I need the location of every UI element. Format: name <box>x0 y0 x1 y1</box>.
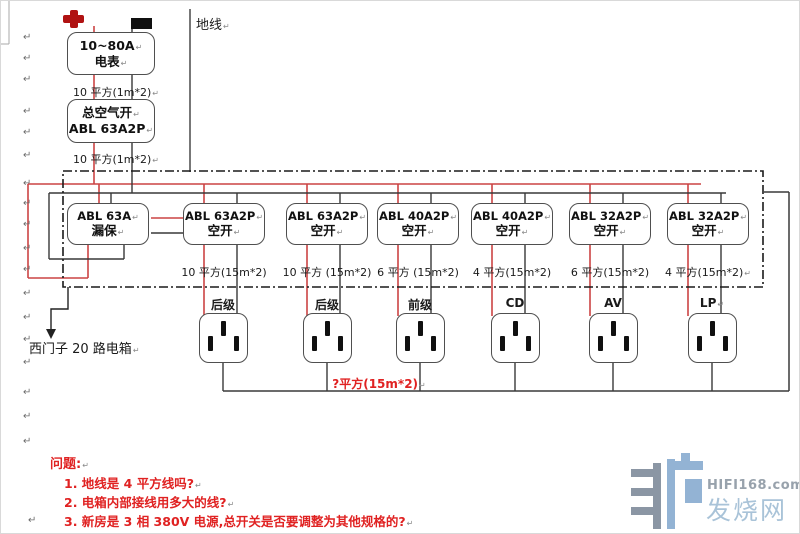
breaker-1: ABL 63A2P↵ 空开↵ <box>183 203 265 245</box>
breaker-model: ABL 40A2P↵ <box>379 209 457 223</box>
paragraph-mark: ↵ <box>23 127 31 138</box>
paragraph-mark: ↵ <box>23 387 31 398</box>
question-item-2: 2. 电箱内部接线用多大的线?↵ <box>64 494 413 513</box>
outlet-label-5: AV <box>583 296 643 310</box>
outlet-label-3: 前级 <box>390 296 450 313</box>
breaker-model: ABL 40A2P↵ <box>473 209 551 223</box>
breaker-5: ABL 32A2P↵ 空开↵ <box>569 203 651 245</box>
paragraph-mark: ↵ <box>23 178 31 189</box>
paragraph-mark: ↵ <box>23 106 31 117</box>
paragraph-mark: ↵ <box>28 515 36 526</box>
paragraph-mark: ↵ <box>23 436 31 447</box>
outlet-socket-icon <box>491 313 540 363</box>
paragraph-mark: ↵ <box>23 288 31 299</box>
paragraph-mark: ↵ <box>23 243 31 254</box>
main-breaker-box: 总空气开↵ ABL 63A2P↵ <box>67 99 155 143</box>
breaker-model: ABL 32A2P↵ <box>571 209 649 223</box>
watermark: HIFI168.com 发烧网 <box>629 453 799 533</box>
breaker-type: 漏保↵ <box>92 223 125 239</box>
outlet-ground-stubs <box>223 363 712 391</box>
outlet-socket-icon <box>303 313 352 363</box>
wire-label-meter-to-main: 10 平方(1m*2)↵ <box>73 84 159 100</box>
meter-box: 10~80A↵ 电表↵ <box>67 32 155 75</box>
paragraph-mark: ↵ <box>23 312 31 323</box>
callout-arrow-line <box>51 287 68 329</box>
paragraph-mark: ↵ <box>23 74 31 85</box>
breaker-model: ABL 63A2P↵ <box>185 209 263 223</box>
questions-block: 问题:↵ 1. 地线是 4 平方线吗?↵ 2. 电箱内部接线用多大的线?↵ 3.… <box>50 453 413 532</box>
question-item-3: 3. 新房是 3 相 380V 电源,总开关是否要调整为其他规格的?↵ <box>64 513 413 532</box>
breaker-type: 空开↵ <box>496 223 529 239</box>
paragraph-mark: ↵ <box>23 32 31 43</box>
meter-label: 电表↵ <box>95 54 128 70</box>
paragraph-mark: ↵ <box>23 411 31 422</box>
question-item-1: 1. 地线是 4 平方线吗?↵ <box>64 475 413 494</box>
outlet-label-1: 后级 <box>193 296 253 313</box>
paragraph-mark: ↵ <box>23 150 31 161</box>
paragraph-mark: ↵ <box>23 53 31 64</box>
margin-crop-mark <box>1 1 9 44</box>
paragraph-mark: ↵ <box>23 198 31 209</box>
wire-label-main-to-panel: 10 平方(1m*2)↵ <box>73 151 159 167</box>
outlet-socket-icon <box>688 313 737 363</box>
meter-rating: 10~80A↵ <box>80 38 143 54</box>
breaker-3: ABL 40A2P↵ 空开↵ <box>377 203 459 245</box>
outlet-socket-icon <box>589 313 638 363</box>
branch-wire-label-6: 4 平方(15m*2)↵ <box>643 264 773 280</box>
breaker-type: 空开↵ <box>594 223 627 239</box>
document-page: ↵↵↵↵↵↵↵↵↵↵↵↵↵↵↵↵↵↵↵ 地线↵ 10~80A↵ 电表↵ 10 平… <box>0 0 800 534</box>
paragraph-mark: ↵ <box>23 219 31 230</box>
ground-bus-wire-label: ?平方(15m*2)↵ <box>319 375 439 392</box>
breaker-model: ABL 32A2P↵ <box>669 209 747 223</box>
outlet-label-4: CD <box>485 296 545 310</box>
panel-box-label: 西门子 20 路电箱↵ <box>29 338 140 357</box>
outlet-label-2: 后级 <box>297 296 357 313</box>
breaker-type: 空开↵ <box>402 223 435 239</box>
live-terminal-cross-icon <box>63 10 84 28</box>
breaker-model: ABL 63A2P↵ <box>288 209 366 223</box>
breaker-type: 空开↵ <box>311 223 344 239</box>
watermark-logo-gray-bar <box>653 463 661 529</box>
breaker-type: 空开↵ <box>692 223 725 239</box>
neutral-terminal-icon <box>131 18 152 29</box>
questions-title: 问题:↵ <box>50 453 413 472</box>
breaker-2: ABL 63A2P↵ 空开↵ <box>286 203 368 245</box>
main-breaker-name: 总空气开↵ <box>82 105 140 121</box>
breaker-type: 空开↵ <box>208 223 241 239</box>
paragraph-mark: ↵ <box>23 264 31 275</box>
ground-wire-label: 地线↵ <box>196 14 230 33</box>
outlet-socket-icon <box>199 313 248 363</box>
breaker-rcd: ABL 63A↵ 漏保↵ <box>67 203 149 245</box>
paragraph-mark: ↵ <box>23 357 31 368</box>
watermark-name: 发烧网 <box>706 491 787 527</box>
outlet-label-6: LP↵ <box>682 296 742 310</box>
breaker-model: ABL 63A↵ <box>77 209 139 223</box>
main-breaker-model: ABL 63A2P↵ <box>69 121 153 137</box>
breaker-4: ABL 40A2P↵ 空开↵ <box>471 203 553 245</box>
breaker-6: ABL 32A2P↵ 空开↵ <box>667 203 749 245</box>
outlet-socket-icon <box>396 313 445 363</box>
